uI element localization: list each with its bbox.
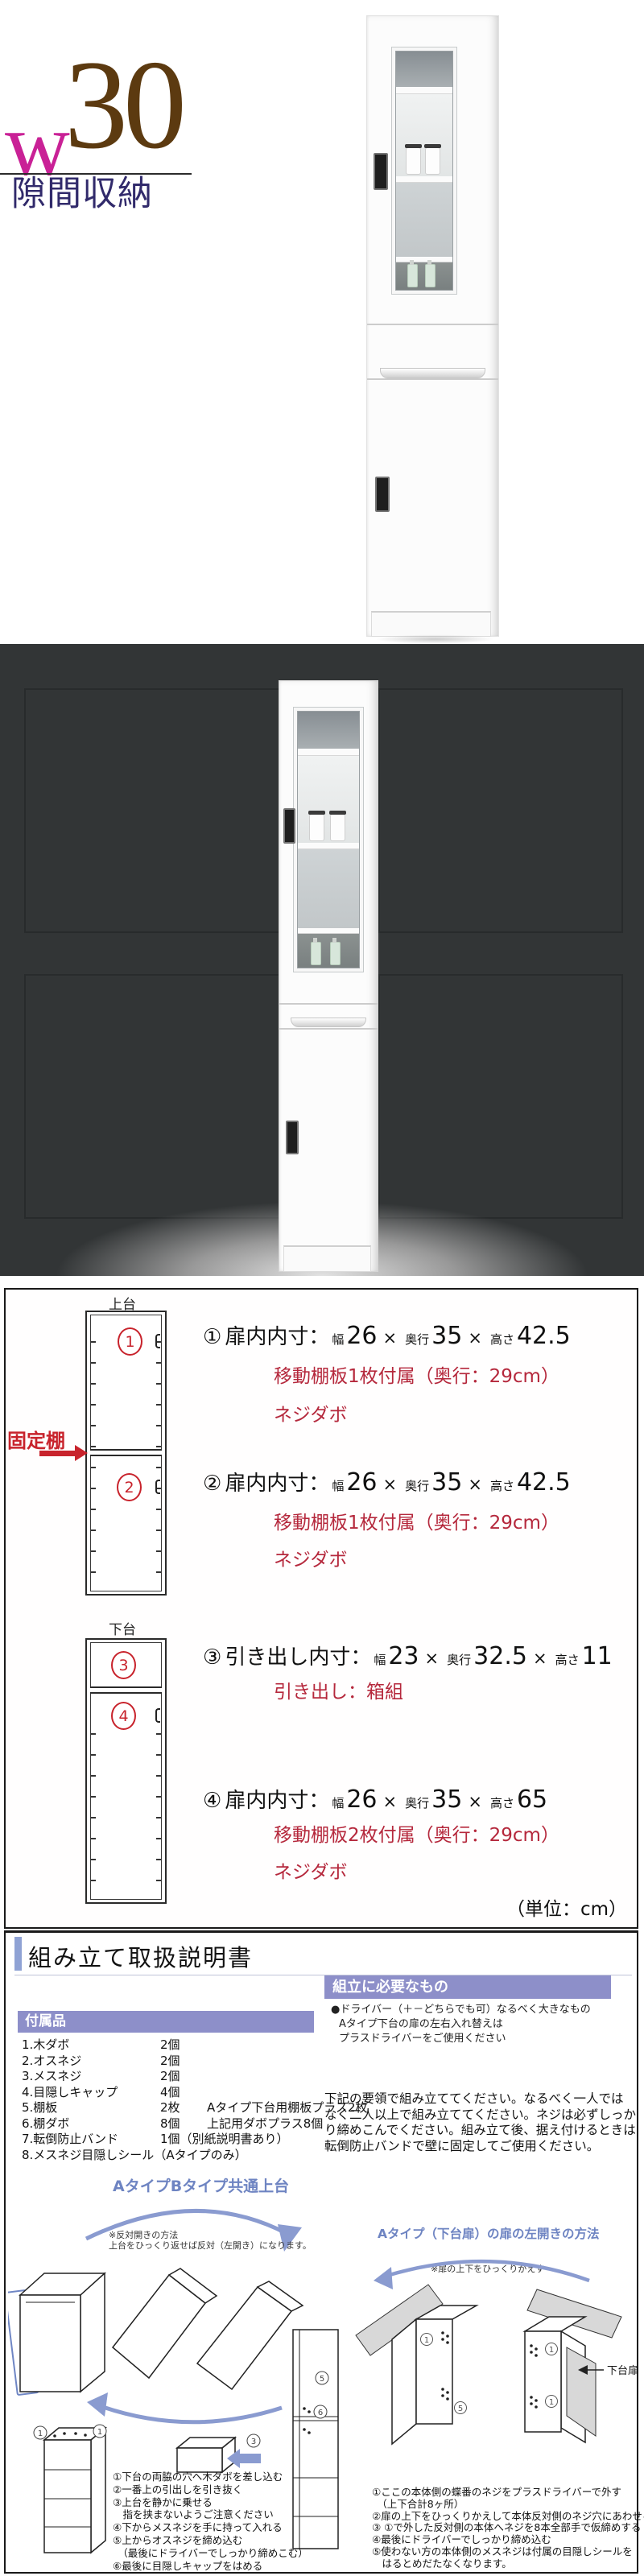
assembly-title: 組み立て取扱説明書 [28,1939,253,1973]
accessory-row: 5.棚板2枚Aタイプ下台用棚板プラス2枚 [22,2100,368,2116]
shelf-compartment [396,94,452,176]
title-accent-bar [14,1937,22,1971]
needed-line: Aタイプ下台の扉の左右入れ替えは [331,2017,591,2032]
right-assembly-diagram: 1 5 1 1 下台扉 [340,2243,640,2484]
shelf [396,257,452,262]
fixed-shelf-arrowhead-icon [75,1445,88,1461]
spec-heading-3: ③引き出し内寸：幅23×奥行32.5×高さ11 [203,1641,613,1670]
bottle [311,942,321,965]
diagram-number-1: 1 [118,1327,142,1356]
product-page: w 30 隙間収納 [0,0,644,2576]
door-handle [283,808,295,844]
bottle-compartment [396,262,452,290]
cabinet-photo-dark [279,680,378,1272]
drawer-lip [291,1018,366,1027]
svg-text:1: 1 [38,2429,43,2438]
svg-text:1: 1 [549,2346,554,2355]
assembly-section: 組み立て取扱説明書 組立に必要なもの ●ドライバー（＋－どちらでも可）なるべく大… [4,1930,638,2574]
panel-seam [367,378,498,380]
spec-note: 引き出し：箱組 [274,1676,403,1703]
svg-text:5: 5 [320,2375,324,2384]
fixed-shelf-label: 固定棚 [7,1425,65,1453]
spec-note: 移動棚板1枚付属（奥行：29cm） [274,1360,559,1388]
glass-door [293,707,364,972]
bottle-compartment [298,934,359,968]
left-diagram-note2: 上台をひっくり返せば反対（左開き）になります。 [109,2239,312,2252]
accessory-row: 8.メスネジ目隠しシール（Aタイプのみ） [22,2148,368,2164]
dark-showcase [0,644,644,1276]
plinth [283,1245,371,1272]
shelf [298,749,359,756]
canister [330,814,345,841]
needed-line: プラスドライバーをご使用ください [331,2032,591,2046]
fixed-shelf-arrow-icon [39,1451,75,1456]
shelf [298,928,359,934]
frosted-band [396,183,452,257]
canister [406,147,421,175]
door-handle [374,153,388,190]
assembly-notice: 下記の要領で組み立ててください。なるべく一人では なく二人以上で組み立ててくださ… [324,2091,643,2154]
panel-seam [279,1003,378,1005]
accessory-row: 3.メスネジ2個 [22,2069,368,2085]
door-handle [286,1121,299,1154]
accessory-row: 7.転倒防止バンド1個（別紙説明書あり） [22,2132,368,2148]
fixed-shelf-line [90,1449,162,1456]
svg-text:6: 6 [318,2409,323,2417]
drawer-divider-line [90,1686,162,1694]
logo-subtitle: 隙間収納 [11,176,153,213]
spec-note: ネジダボ [274,1399,348,1426]
spec-heading-1: ①扉内内寸：幅26×奥行35×高さ42.5 [203,1320,571,1350]
needed-tools-lines: ●ドライバー（＋－どちらでも可）なるべく大きなもの Aタイプ下台の扉の左右入れ替… [331,2003,591,2046]
logo-width-number: 30 [64,42,182,169]
spec-note: ネジダボ [274,1544,348,1571]
drawer-lip [380,368,485,378]
svg-text:5: 5 [458,2405,463,2413]
accessory-row: 4.目隠しキャップ4個 [22,2085,368,2101]
spec-note: 移動棚板1枚付属（奥行：29cm） [274,1507,559,1534]
shelf [298,843,359,849]
accessory-row: 1.木ダボ2個 [22,2037,368,2054]
panel-seam [279,1028,378,1030]
shelf [396,176,452,183]
right-diagram-heading: Aタイプ（下台扉）の扉の左開きの方法 [378,2224,600,2242]
lower-unit-label: 下台 [109,1618,136,1638]
needed-line: ●ドライバー（＋－どちらでも可）なるべく大きなもの [331,2003,591,2017]
bottle [330,942,341,965]
left-step-list: ①下台の両脇の穴へ木ダボを差し込む ②一番上の引出しを引き抜く ③上台を静かに乗… [113,2471,308,2572]
bottle [425,264,436,287]
wall-panel [378,688,623,933]
svg-text:1: 1 [97,2428,102,2437]
cabinet-wall-lines [90,1642,162,1900]
shelf-compartment [298,756,359,843]
accessory-row: 2.オスネジ2個 [22,2054,368,2070]
door-handle [375,477,390,512]
svg-text:3: 3 [251,2438,256,2446]
shelf-pin-ticks [156,1714,161,1894]
glass-top-band [396,52,452,87]
glass-pane [395,51,453,291]
accessory-row: 6.棚ダボ8個上記用ダボプラス8個 [22,2116,368,2132]
diagram-number-3: 3 [111,1651,136,1679]
unit-note: （単位：cm） [506,1893,627,1921]
svg-text:下台扉: 下台扉 [607,2364,638,2377]
spec-note: ネジダボ [274,1856,348,1884]
shelf [396,87,452,94]
accessories-list: 1.木ダボ2個 2.オスネジ2個 3.メスネジ2個 4.目隠しキャップ4個 5.… [22,2037,368,2163]
dimensions-section: 上台 1 2 固定棚 下台 3 4 ①扉内内寸：幅26×奥行35×高さ42.5 [4,1288,638,1929]
diagram-number-4: 4 [111,1702,136,1730]
canister [309,814,324,841]
svg-text:1: 1 [549,2398,554,2407]
door-hinge-mark [155,1708,160,1723]
glass-door [391,47,457,295]
spec-heading-2: ②扉内内寸：幅26×奥行35×高さ42.5 [203,1467,571,1496]
glass-pane [297,711,360,968]
accessories-header: 付属品 [18,2011,314,2033]
frosted-band [298,849,359,928]
svg-text:1: 1 [424,2336,429,2345]
glass-top-band [298,712,359,749]
canister [425,147,440,175]
door-hinge-mark [155,1480,160,1494]
needed-tools-header: 組立に必要なもの [324,1975,611,1999]
diagram-number-2: 2 [117,1473,142,1501]
shelf-pin-ticks [91,1714,96,1894]
cabinet-photo-light [366,15,499,637]
door-hinge-mark [155,1334,160,1348]
bottle [407,264,418,287]
panel-seam [367,324,498,325]
spec-note: 移動棚板2枚付属（奥行：29cm） [274,1819,559,1847]
spec-heading-4: ④扉内内寸：幅26×奥行35×高さ65 [203,1784,547,1814]
wall-panel [24,688,293,933]
right-step-list: ①ここの本体側の蝶番のネジをプラスドライバーで外す （上下合計8ヶ所） ②扉の上… [372,2487,644,2570]
